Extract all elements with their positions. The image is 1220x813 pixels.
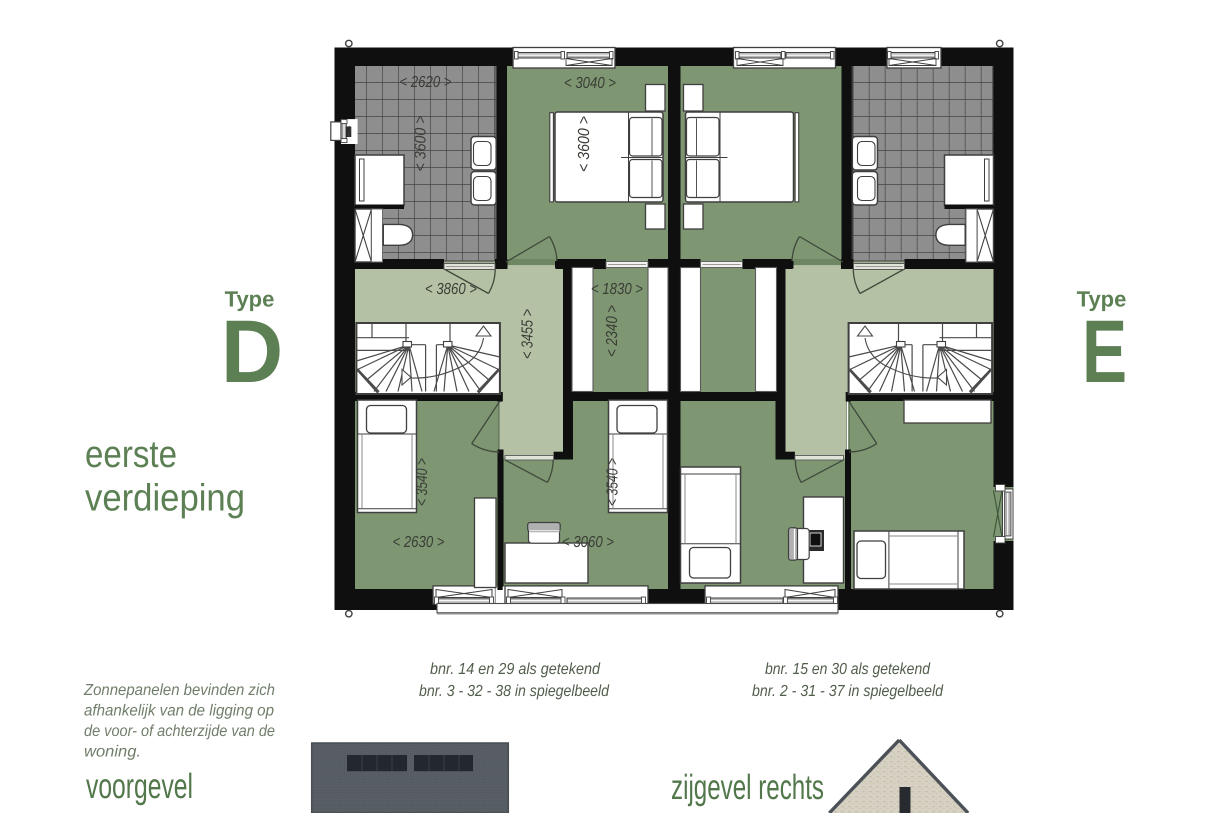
svg-text:< 2340 >: < 2340 > [604, 305, 621, 357]
svg-text:afhankelijk van de ligging op: afhankelijk van de ligging op [84, 703, 274, 720]
svg-text:bnr. 14 en 29 als getekend: bnr. 14 en 29 als getekend [430, 661, 601, 678]
svg-text:voorgevel: voorgevel [86, 767, 193, 806]
svg-text:< 3060 >: < 3060 > [562, 534, 614, 551]
svg-text:< 3540 >: < 3540 > [414, 458, 431, 506]
svg-text:de voor- of achterzijde van de: de voor- of achterzijde van de [84, 723, 275, 740]
svg-text:zijgevel rechts: zijgevel rechts [671, 768, 824, 807]
svg-text:< 3600 >: < 3600 > [413, 116, 430, 172]
svg-text:< 3540 >: < 3540 > [605, 458, 622, 506]
svg-text:D: D [221, 301, 283, 401]
svg-text:Zonnepanelen bevinden zich: Zonnepanelen bevinden zich [83, 682, 275, 699]
svg-text:< 2620 >: < 2620 > [400, 74, 452, 91]
svg-text:bnr. 3 - 32 - 38 in spiegelbee: bnr. 3 - 32 - 38 in spiegelbeeld [419, 683, 610, 700]
svg-text:bnr. 15 en 30 als getekend: bnr. 15 en 30 als getekend [765, 661, 931, 678]
svg-text:E: E [1082, 301, 1127, 401]
svg-text:< 2630 >: < 2630 > [393, 534, 445, 551]
svg-text:eerste: eerste [85, 434, 177, 476]
svg-text:verdieping: verdieping [85, 478, 245, 520]
svg-text:< 3455 >: < 3455 > [520, 309, 537, 359]
svg-text:woning.: woning. [84, 744, 141, 761]
svg-text:< 3860 >: < 3860 > [425, 281, 477, 298]
svg-text:bnr. 2 - 31 - 37 in spiegelbee: bnr. 2 - 31 - 37 in spiegelbeeld [752, 683, 944, 700]
svg-text:< 3040 >: < 3040 > [564, 75, 616, 92]
svg-text:< 1830 >: < 1830 > [591, 281, 643, 298]
svg-text:< 3600 >: < 3600 > [576, 116, 593, 172]
